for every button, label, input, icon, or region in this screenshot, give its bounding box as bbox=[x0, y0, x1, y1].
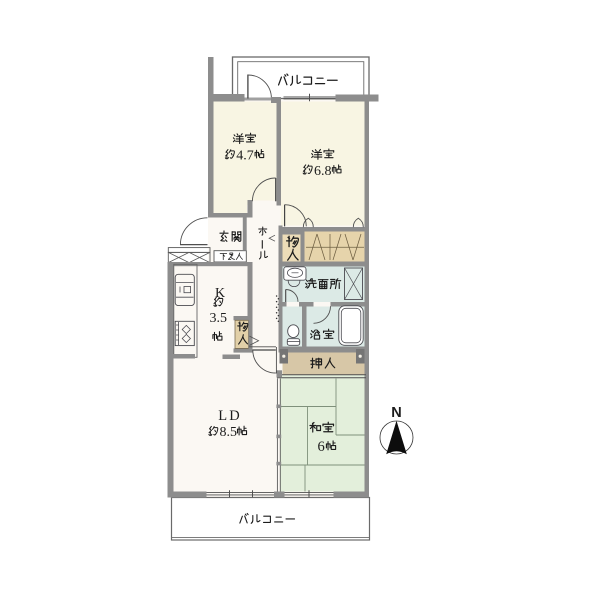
svg-text:3.5: 3.5 bbox=[210, 311, 228, 326]
svg-text:8.5: 8.5 bbox=[220, 425, 238, 440]
svg-text:N: N bbox=[391, 405, 401, 421]
svg-text:L: L bbox=[218, 408, 227, 424]
svg-text:4.7: 4.7 bbox=[236, 149, 254, 164]
svg-text:D: D bbox=[229, 408, 239, 424]
svg-text:6: 6 bbox=[318, 439, 325, 455]
svg-text:6.8: 6.8 bbox=[314, 164, 332, 179]
